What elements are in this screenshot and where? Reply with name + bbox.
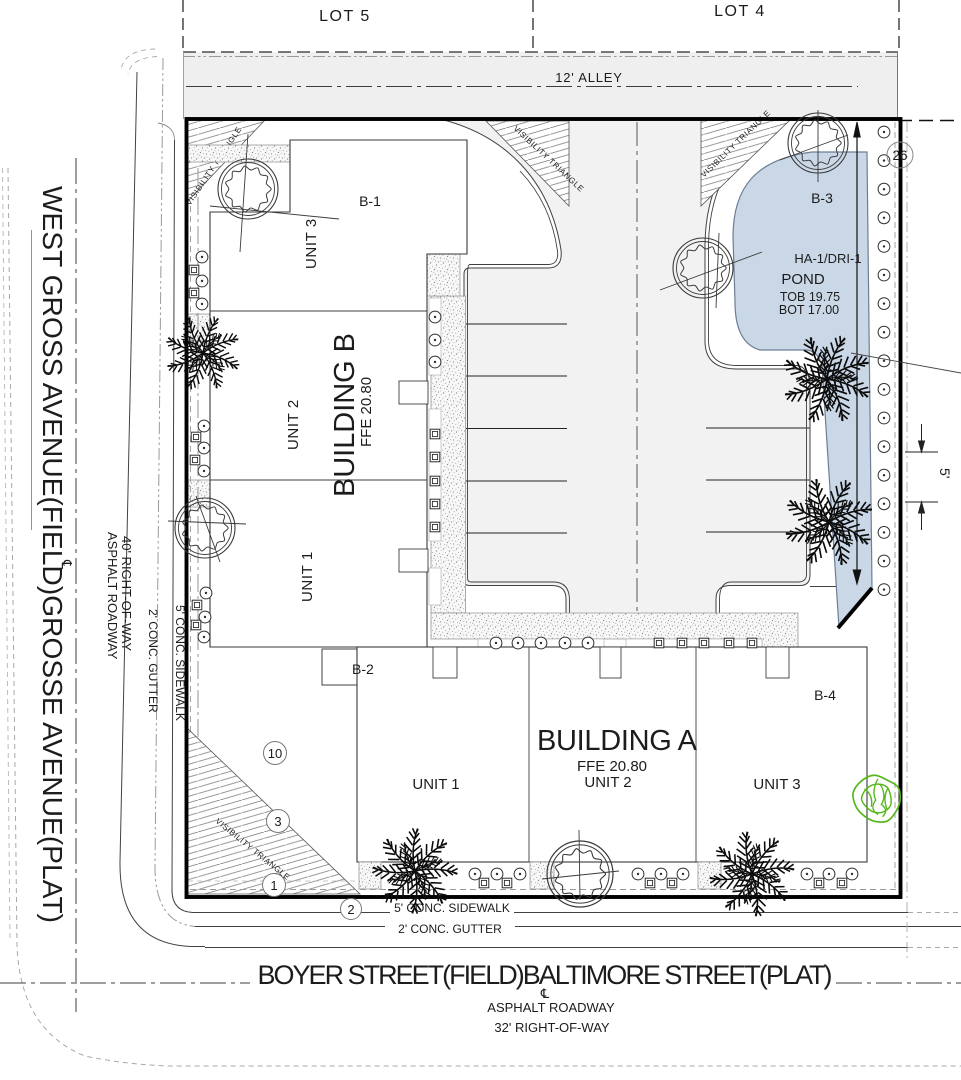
svg-text:℄: ℄ — [540, 986, 550, 1001]
svg-text:1: 1 — [270, 878, 277, 893]
svg-text:UNIT 3: UNIT 3 — [753, 776, 800, 793]
svg-text:5': 5' — [937, 468, 953, 478]
svg-text:TOB 19.75: TOB 19.75 — [780, 290, 840, 304]
svg-text:26: 26 — [892, 148, 907, 163]
svg-text:FFE 20.80: FFE 20.80 — [577, 758, 647, 775]
svg-text:B-4: B-4 — [814, 687, 836, 703]
svg-text:BUILDING B: BUILDING B — [329, 333, 361, 497]
svg-text:ASPHALT ROADWAY: ASPHALT ROADWAY — [105, 532, 120, 660]
svg-text:BUILDING A: BUILDING A — [537, 725, 698, 757]
svg-text:UNIT 2: UNIT 2 — [584, 774, 631, 791]
svg-text:UNIT 3: UNIT 3 — [303, 218, 320, 269]
svg-text:HA-1/DRI-1: HA-1/DRI-1 — [794, 251, 861, 266]
svg-text:3: 3 — [274, 814, 281, 829]
svg-text:UNIT 1: UNIT 1 — [299, 551, 316, 602]
svg-text:℄: ℄ — [59, 559, 75, 569]
svg-text:40' RIGHT-OF-WAY: 40' RIGHT-OF-WAY — [119, 536, 134, 651]
svg-text:ASPHALT ROADWAY: ASPHALT ROADWAY — [487, 1000, 615, 1015]
svg-text:10: 10 — [268, 746, 282, 761]
svg-text:POND: POND — [781, 271, 825, 288]
svg-text:2' CONC. GUTTER: 2' CONC. GUTTER — [146, 609, 160, 713]
svg-text:WEST GROSS AVENUE(FIELD)GROSSE: WEST GROSS AVENUE(FIELD)GROSSE AVENUE(PL… — [37, 186, 68, 923]
svg-text:UNIT 1: UNIT 1 — [412, 776, 459, 793]
svg-text:LOT 5: LOT 5 — [319, 8, 371, 25]
svg-text:B-1: B-1 — [359, 193, 381, 209]
svg-text:BOT 17.00: BOT 17.00 — [779, 303, 839, 317]
svg-text:12' ALLEY: 12' ALLEY — [555, 70, 623, 85]
svg-text:B-3: B-3 — [811, 190, 833, 206]
svg-text:2: 2 — [347, 902, 354, 917]
svg-text:UNIT 2: UNIT 2 — [285, 399, 302, 450]
svg-text:LOT 4: LOT 4 — [714, 3, 766, 20]
svg-text:2' CONC. GUTTER: 2' CONC. GUTTER — [398, 922, 502, 936]
svg-text:32' RIGHT-OF-WAY: 32' RIGHT-OF-WAY — [494, 1020, 609, 1035]
svg-text:B-2: B-2 — [352, 661, 374, 677]
svg-text:FFE 20.80: FFE 20.80 — [358, 377, 375, 447]
